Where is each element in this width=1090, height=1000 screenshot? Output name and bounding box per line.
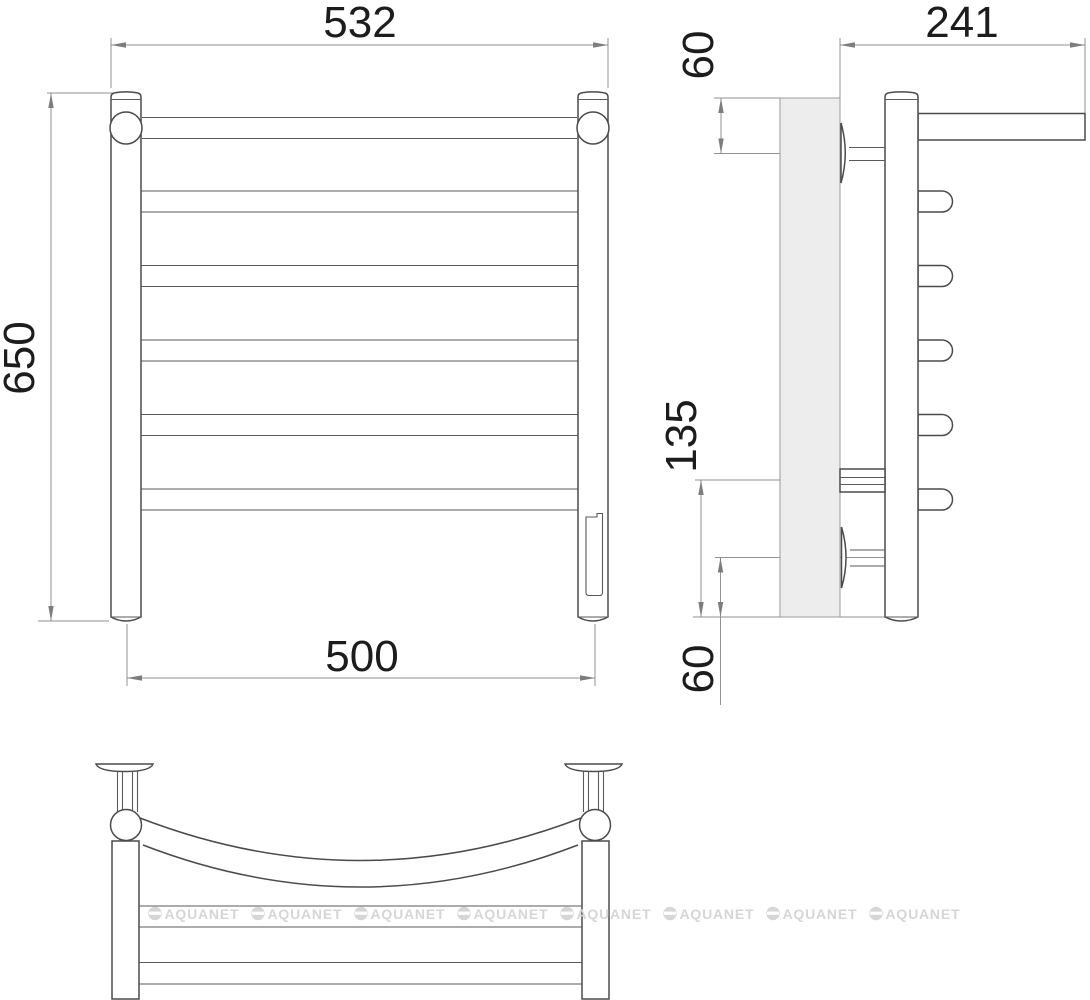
watermark [766, 906, 857, 922]
front-left-collector [110, 112, 142, 144]
dim-label-top-bracket-offset: 60 [674, 31, 723, 80]
dim-label-lower-bracket-spacing: 135 [657, 399, 706, 472]
watermark-row [148, 906, 960, 922]
top-right-wall-flange [565, 764, 622, 772]
side-upper-bracket-stem [849, 148, 885, 161]
watermark [457, 906, 548, 922]
watermark [663, 906, 754, 922]
watermark [251, 906, 342, 922]
top-left-wall-flange [96, 764, 153, 772]
top-bracket-stems [118, 771, 604, 812]
front-left-post [111, 92, 141, 621]
side-post [885, 92, 918, 621]
front-right-collector [577, 112, 609, 144]
side-shelf-bar [918, 114, 1085, 141]
side-lower-bracket-flange [842, 527, 847, 588]
watermark [869, 906, 960, 922]
dim-label-depth: 241 [925, 0, 998, 47]
dim-label-overall-height: 650 [0, 321, 44, 394]
side-mid-bracket [840, 469, 885, 492]
drawing-canvas: AQUANET 532 650 500 241 60 135 60 [0, 0, 1090, 1000]
watermark [148, 906, 239, 922]
watermark [560, 906, 651, 922]
dimension-labels: 532 650 500 241 60 135 60 [0, 0, 999, 693]
top-view [96, 764, 622, 999]
front-rungs [141, 118, 578, 511]
dim-label-axle-distance: 500 [325, 632, 398, 681]
top-right-collector [580, 810, 611, 841]
side-rung-stubs [918, 191, 953, 510]
front-view [110, 92, 609, 621]
side-upper-bracket-flange [841, 123, 845, 183]
front-right-post [578, 92, 608, 621]
top-curved-bar-fill [140, 818, 581, 887]
side-view [780, 92, 1085, 621]
side-wall-strip [780, 98, 840, 617]
front-post-seams [111, 100, 608, 618]
dim-label-bottom-bracket-offset: 60 [674, 645, 723, 694]
top-left-collector [111, 810, 142, 841]
watermark [354, 906, 445, 922]
dim-label-overall-width: 532 [323, 0, 396, 47]
technical-drawing-svg: AQUANET 532 650 500 241 60 135 60 [0, 0, 1090, 1000]
